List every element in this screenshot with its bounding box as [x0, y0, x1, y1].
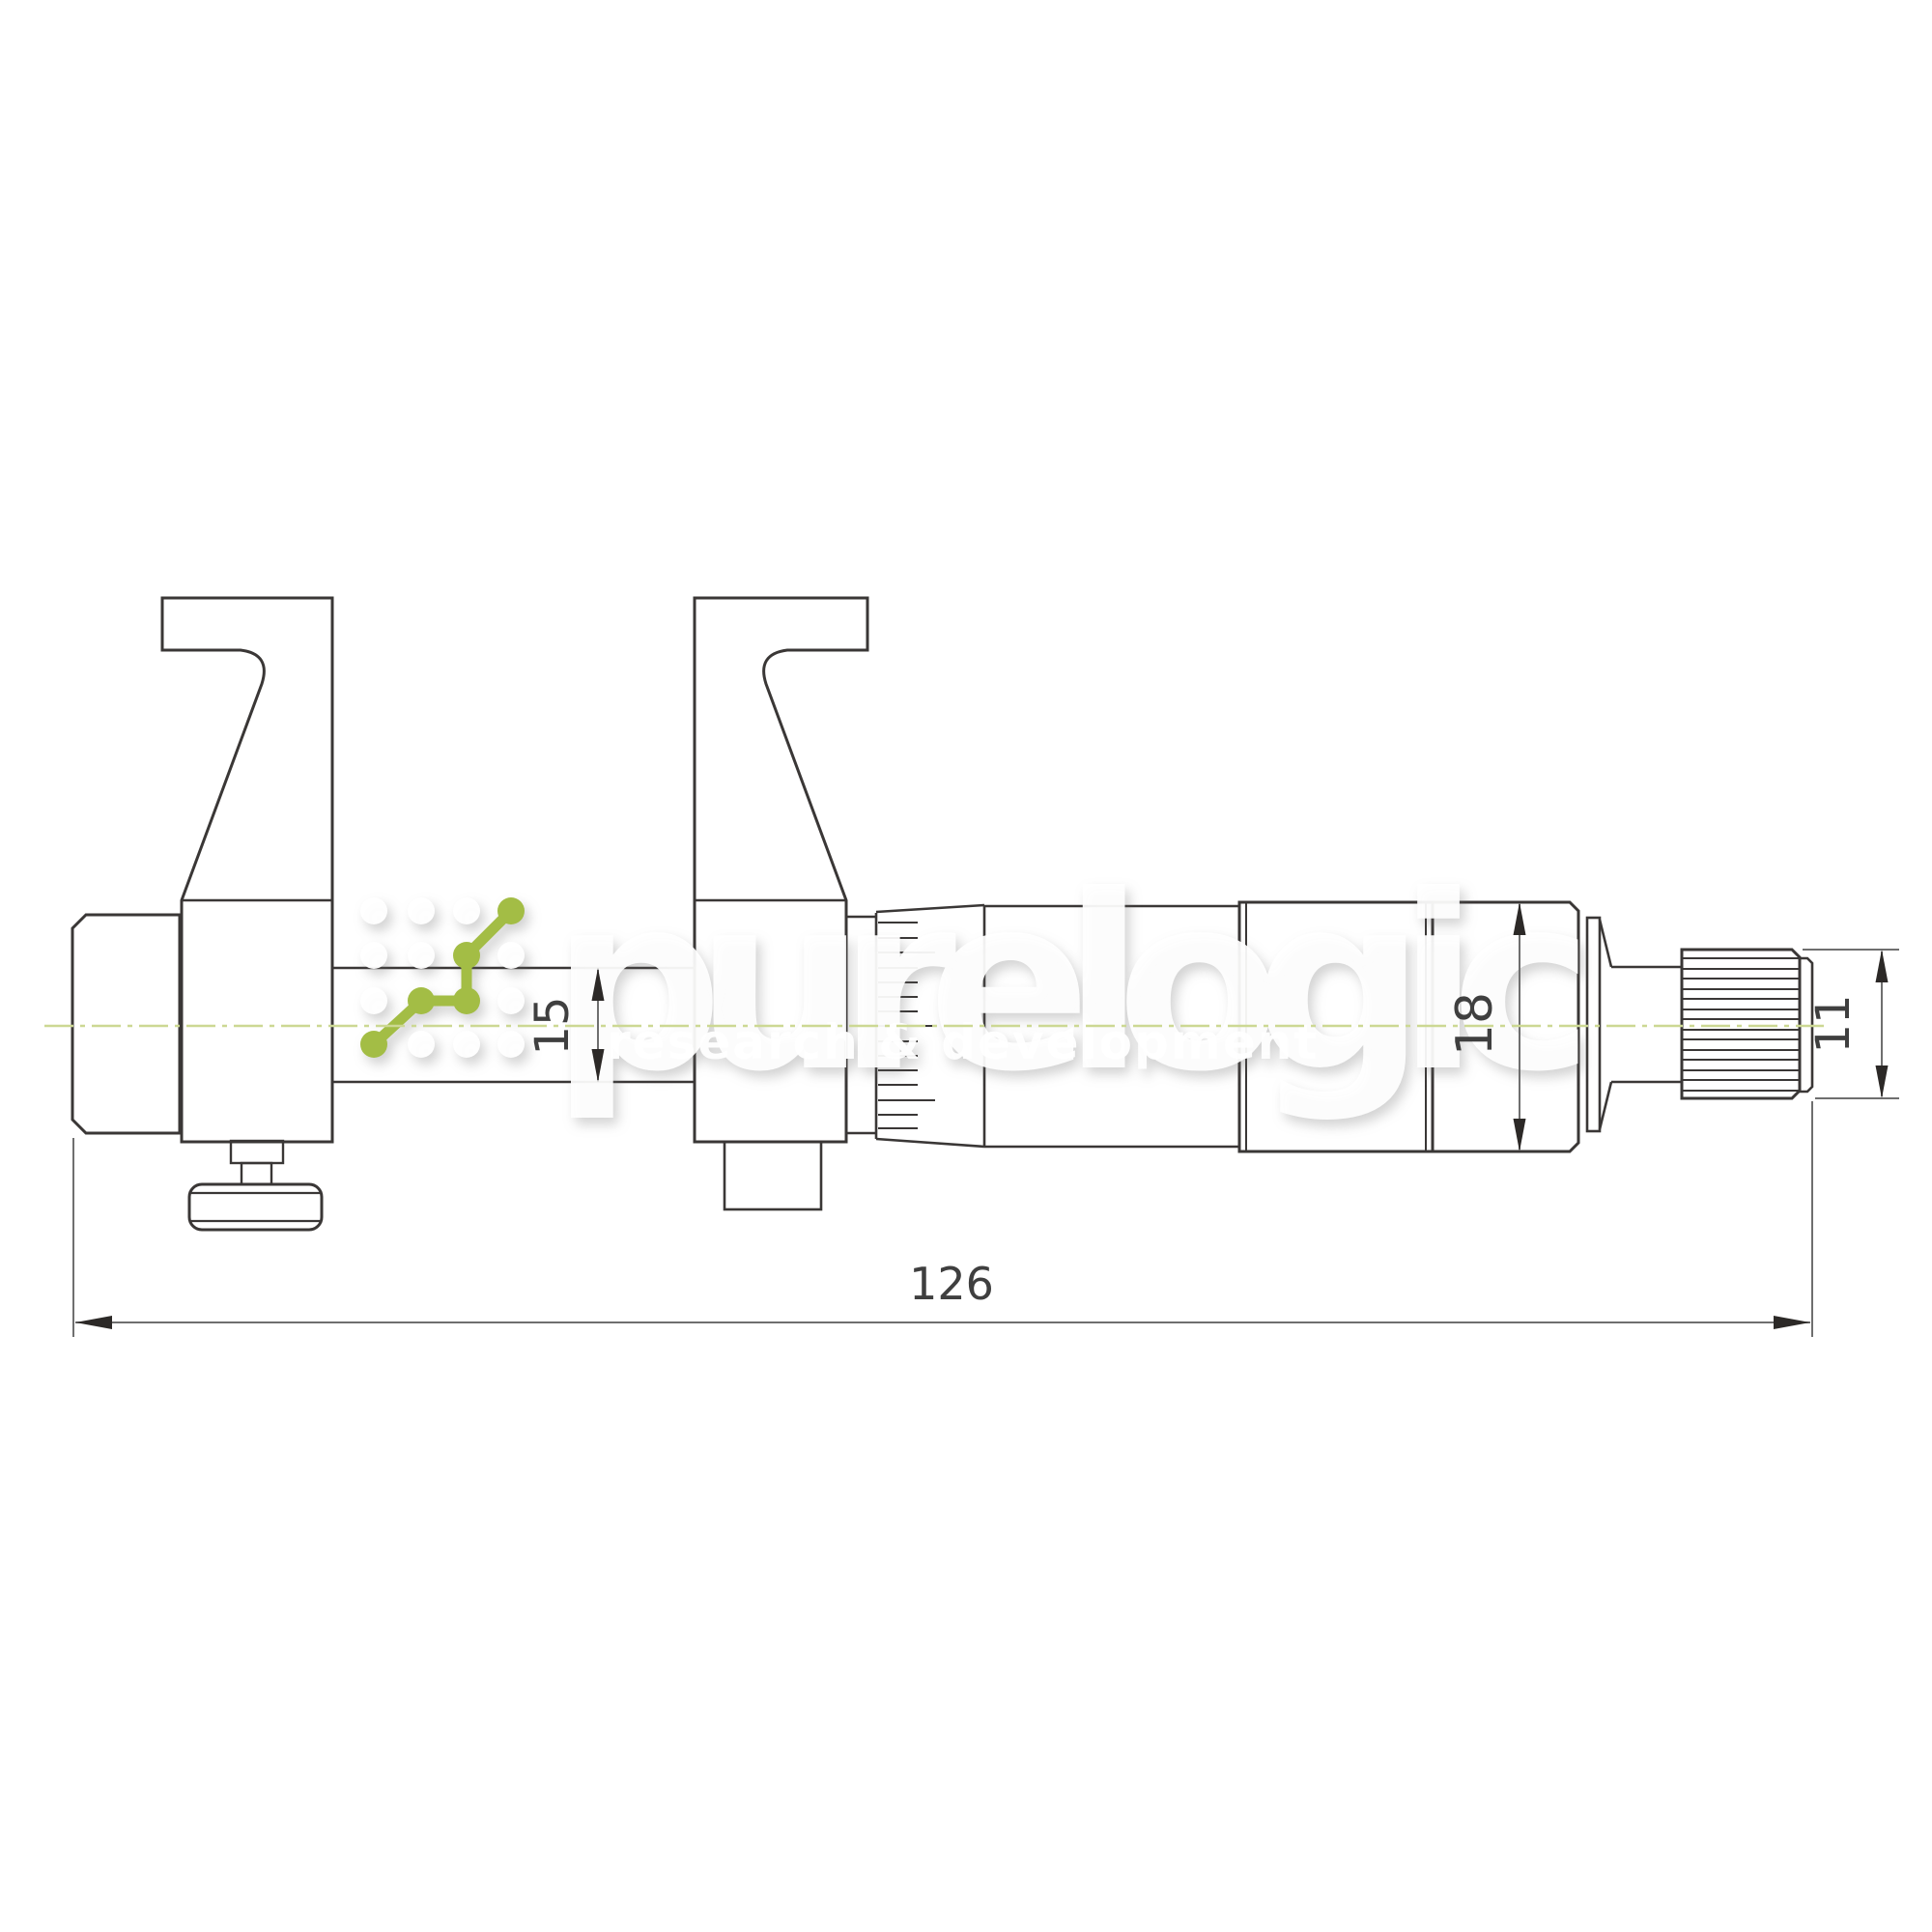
inside-micrometer-technical-drawing: purelogic research & development 15 18 1… [0, 0, 1932, 1932]
ratchet-knob [1682, 950, 1800, 1098]
logo-dot [497, 942, 525, 969]
right-jaw-block [724, 1142, 821, 1209]
arrow-left-icon [75, 1316, 112, 1329]
logo-dot [453, 897, 480, 924]
left-jaw-outline [162, 598, 332, 1142]
watermark-brand-text: purelogic [551, 843, 1578, 1124]
ratchet-knob-outline [1682, 950, 1800, 1098]
logo-dot [408, 1031, 435, 1058]
sleeve-bottom-edge [876, 1139, 984, 1147]
dimension-ratchet-diameter: 11 [1803, 950, 1899, 1098]
logo-dot [360, 987, 387, 1014]
cone-top-edge [1600, 920, 1611, 967]
dimension-overall-length: 126 [73, 1101, 1812, 1337]
logo-node-icon [408, 987, 435, 1014]
logo-dot [408, 897, 435, 924]
logo-dot [360, 897, 387, 924]
arrow-down-icon [1514, 1119, 1526, 1151]
lock-collar [231, 1141, 283, 1163]
ratchet-knob-ribbing [1683, 958, 1799, 1091]
thimble-step-ring [1587, 918, 1600, 1131]
lock-knob-assembly [189, 1141, 322, 1230]
logo-emblem [360, 897, 525, 1058]
logo-dot [360, 942, 387, 969]
thimble-cone [1600, 920, 1611, 1129]
lock-stem [241, 1163, 271, 1184]
logo-node-icon [497, 897, 525, 924]
dim-value-overall-length: 126 [909, 1258, 994, 1310]
left-jaw [162, 598, 332, 1142]
watermark-tagline-text: research & development [607, 1014, 1319, 1070]
arrow-up-icon [1876, 950, 1889, 982]
logo-dot [497, 1031, 525, 1058]
left-anvil-cap [72, 915, 180, 1133]
lock-knob-knurling [189, 1193, 322, 1221]
arrow-right-icon [1774, 1316, 1810, 1329]
spindle-neck [1611, 967, 1682, 1082]
logo-node-path [374, 911, 511, 1044]
dim-value-ratchet-diameter: 11 [1806, 994, 1861, 1053]
logo-dot [497, 987, 525, 1014]
logo-dot [453, 1031, 480, 1058]
logo-node-icon [360, 1031, 387, 1058]
logo-node-icon [453, 987, 480, 1014]
dim-value-sleeve-diameter: 18 [1446, 992, 1504, 1056]
drawing-page: purelogic research & development 15 18 1… [0, 0, 1932, 1932]
arrow-down-icon [1876, 1065, 1889, 1098]
lock-knob [189, 1184, 322, 1230]
logo-node-icon [453, 942, 480, 969]
cone-bottom-edge [1600, 1082, 1611, 1129]
logo-dot [408, 942, 435, 969]
